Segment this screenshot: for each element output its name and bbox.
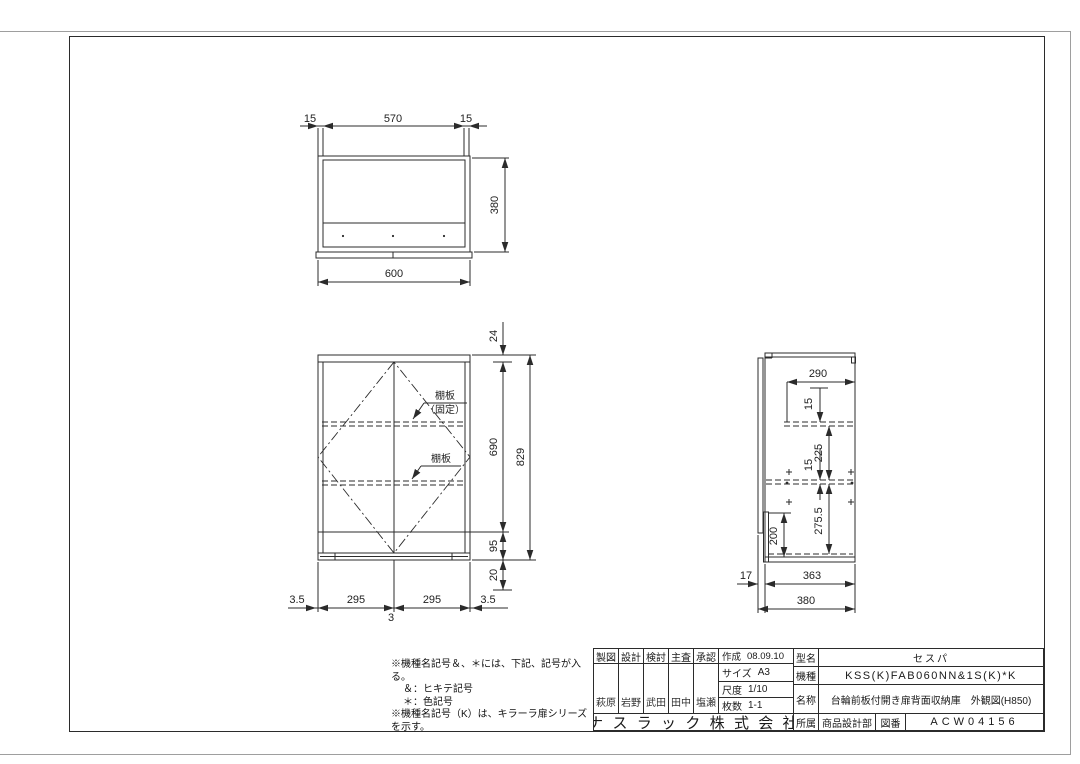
tb-stamp-hagiwara: 萩原: [593, 663, 619, 714]
tb-machine-value: KSS(K)FAB060NN&1S(K)*K: [818, 666, 1044, 685]
tb-role-seizu: 製図: [593, 648, 619, 664]
dim-front-95: 95: [488, 540, 500, 552]
label-shelf-fixed-2: （固定）: [425, 403, 465, 416]
tb-company: ナスラック株式会社: [593, 713, 794, 731]
tb-created-value: 08.09.10: [747, 651, 784, 662]
tb-dept-label: 所属: [793, 713, 819, 731]
dim-top-380: 380: [489, 196, 501, 214]
note-line-2: ＆：ヒキテ記号: [391, 684, 596, 697]
tb-role-kentou: 検討: [643, 648, 669, 664]
tb-role-sekkei: 設計: [618, 648, 644, 664]
title-block: 製図 設計 検討 主査 承認 萩原 岩野 武田 田中 塩瀬 作成 08.09.1…: [593, 648, 1044, 731]
dim-front-3.5-right: 3.5: [480, 594, 495, 606]
dim-front-295-left: 295: [347, 594, 365, 606]
dim-front-3.5-left: 3.5: [289, 594, 304, 606]
dim-side-17: 17: [740, 570, 752, 582]
dim-top-15-left: 15: [304, 113, 316, 125]
tb-model-value: セスパ: [818, 648, 1044, 667]
dim-side-200: 200: [768, 527, 780, 545]
tb-sheets-label: 枚数: [722, 698, 742, 713]
tb-role-shounin: 承認: [693, 648, 719, 664]
tb-stamp-tanaka: 田中: [668, 663, 694, 714]
tb-machine-label: 機種: [793, 666, 819, 685]
tb-name-label: 名称: [793, 684, 819, 714]
dim-top-570: 570: [384, 113, 402, 125]
dim-side-15-upper: 15: [803, 398, 815, 410]
tb-model-label: 型名: [793, 648, 819, 667]
dim-top-15-right: 15: [460, 113, 472, 125]
note-line-1: ※機種名記号＆、＊には、下記、記号が入る。: [391, 659, 596, 684]
dim-side-290: 290: [809, 368, 827, 380]
dim-side-380: 380: [797, 595, 815, 607]
notes-block: ※機種名記号＆、＊には、下記、記号が入る。 ＆：ヒキテ記号 ＊：色記号 ※機種名…: [391, 659, 596, 734]
drawing-sheet: { "views": { "top": { "d15l": "15", "d57…: [0, 0, 1080, 764]
tb-scale: 尺度 1/10: [718, 681, 794, 698]
tb-name-value: 台輪前板付開き扉背面収納庫 外観図(H850): [818, 684, 1044, 714]
dim-side-15-lower: 15: [803, 459, 815, 471]
label-shelf-fixed-1: 棚板: [435, 389, 455, 402]
top-view: 15 570 15 380 600: [300, 113, 509, 286]
dim-front-690: 690: [488, 438, 500, 456]
dim-front-3: 3: [388, 612, 394, 624]
tb-scale-value: 1/10: [748, 684, 767, 695]
tb-dwg-label: 図番: [875, 713, 906, 731]
tb-stamp-iwano: 岩野: [618, 663, 644, 714]
tb-stamp-takeda: 武田: [643, 663, 669, 714]
tb-size-label: サイズ: [722, 665, 752, 680]
tb-dwg-number: ACW04156: [905, 713, 1044, 731]
tb-size: サイズ A3: [718, 663, 794, 682]
dim-side-363: 363: [803, 570, 821, 582]
tb-created-label: 作成: [722, 649, 741, 663]
tb-scale-label: 尺度: [722, 682, 742, 697]
note-line-3: ＊：色記号: [391, 697, 596, 710]
tb-size-value: A3: [758, 667, 770, 678]
dim-front-295-right: 295: [423, 594, 441, 606]
dim-side-275.5: 275.5: [813, 507, 825, 535]
tb-role-shusa: 主査: [668, 648, 694, 664]
side-view: 290 15 225 15 275.5 200 17 363 380: [737, 353, 856, 613]
tb-created: 作成 08.09.10: [718, 648, 794, 664]
dim-top-600: 600: [385, 268, 403, 280]
note-line-4: ※機種名記号（K）は、キラーラ扉シリーズを示す。: [391, 709, 596, 734]
front-view: 棚板 （固定） 棚板 24 690 95 20 829 3.5 295 3 29…: [288, 322, 536, 624]
dim-front-20: 20: [488, 569, 500, 581]
dim-front-829: 829: [515, 448, 527, 466]
tb-sheets: 枚数 1-1: [718, 697, 794, 714]
tb-stamp-shiose: 塩瀬: [693, 663, 719, 714]
tb-sheets-value: 1-1: [748, 700, 762, 711]
label-shelf: 棚板: [431, 452, 451, 465]
tb-dept-value: 商品設計部: [818, 713, 876, 731]
dim-front-24: 24: [488, 330, 500, 342]
